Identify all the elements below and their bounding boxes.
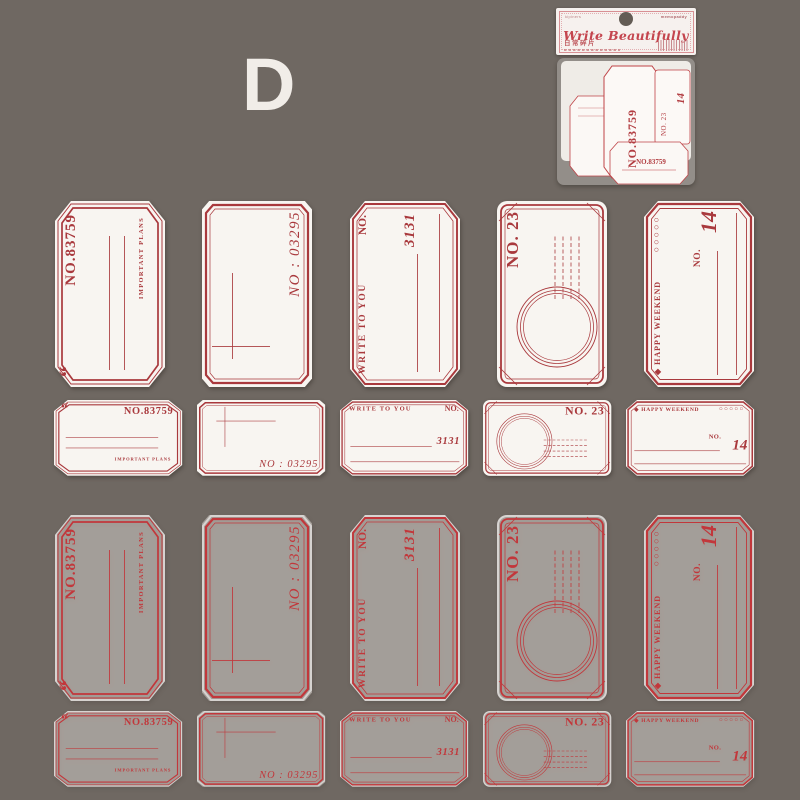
sticker-write-to-you-tall-film: WRITE TO YOUNO.3131 [349, 515, 461, 701]
label-number: 14 [698, 525, 720, 547]
writing-line [109, 236, 110, 370]
sticker-no-23-tall-film: NO. 23 [496, 515, 608, 701]
sticker-design: ◆ HAPPY WEEKEND○○○○○NO.14 [644, 515, 754, 701]
sticker-happy-weekend-tall-paper: ◆ HAPPY WEEKEND○○○○○NO.14 [643, 201, 755, 387]
label-number: NO : 03295 [259, 770, 318, 780]
label-tagline: IMPORTANT PLANS [139, 531, 146, 613]
circle-chain-icon: ○○○○○ [719, 717, 745, 723]
sticker-design: NO. 23 [483, 711, 611, 787]
label-number: 3131 [403, 527, 418, 561]
label-number: 14 [732, 748, 747, 763]
sticker-important-plans-small-film: “NO.83759IMPORTANT PLANS [54, 711, 183, 787]
sticker-design: NO. 23 [497, 515, 607, 701]
label-heading: WRITE TO YOU [359, 283, 369, 374]
sticker-important-plans-small-paper: “NO.83759IMPORTANT PLANS [54, 400, 183, 476]
package-subtitle-cn: 日常碎片 [564, 40, 620, 47]
writing-line [66, 448, 158, 449]
writing-line [717, 251, 718, 375]
row-small-film-stickers: “NO.83759IMPORTANT PLANSNO : 03295WRITE … [0, 711, 800, 787]
writing-line [66, 759, 158, 760]
writing-line [634, 450, 720, 451]
variant-letter: D [242, 48, 295, 122]
sticker-design: WRITE TO YOUNO.3131 [340, 400, 468, 476]
package-bag: NO.83759 14 NO. 23 NO.83759 [557, 58, 695, 185]
label-number: NO. 23 [565, 405, 604, 417]
label-number: 3131 [437, 748, 460, 758]
label-tagline: IMPORTANT PLANS [139, 217, 146, 299]
label-no: NO. [694, 563, 704, 581]
writing-line [634, 463, 746, 464]
writing-line [439, 528, 440, 686]
sticker-design: WRITE TO YOUNO.3131 [350, 515, 460, 701]
sticker-design: NO. 23 [483, 400, 611, 476]
quote-mark: “ [61, 401, 69, 416]
row-tall-white-stickers: “NO.83759IMPORTANT PLANSNO : 03295WRITE … [0, 201, 800, 387]
writing-line [417, 254, 418, 372]
bag-text-bottom-number: NO.83759 [636, 158, 666, 166]
label-heading: WRITE TO YOU [349, 406, 412, 413]
package-fine-print [564, 49, 620, 51]
writing-line [736, 213, 737, 375]
sticker-design: “NO.83759IMPORTANT PLANS [54, 400, 182, 476]
label-number: NO. 23 [565, 716, 604, 728]
label-no: NO. [445, 406, 459, 414]
sticker-design: “NO.83759IMPORTANT PLANS [55, 515, 165, 701]
product-package: kipiners memopaddy Write Beautifully 日常碎… [556, 8, 696, 185]
registration-line [225, 718, 226, 758]
sticker-design: ◆ HAPPY WEEKEND○○○○○NO.14 [644, 201, 754, 387]
label-no: NO. [358, 215, 370, 235]
label-no: NO. [709, 435, 722, 442]
sticker-no-03295-small-paper: NO : 03295 [197, 400, 326, 476]
writing-line [109, 550, 110, 684]
writing-line [439, 214, 440, 372]
sticker-write-to-you-small-film: WRITE TO YOUNO.3131 [340, 711, 469, 787]
label-heading: WRITE TO YOU [349, 717, 412, 724]
label-number: 3131 [403, 213, 418, 247]
label-number: 3131 [437, 437, 460, 447]
writing-line [124, 236, 125, 370]
bag-text-14: 14 [675, 93, 687, 105]
writing-line [717, 565, 718, 689]
label-no: NO. [709, 746, 722, 753]
label-number: 14 [732, 437, 747, 452]
barcode [658, 40, 688, 51]
label-heading: ◆ HAPPY WEEKEND [634, 407, 699, 413]
quote-mark: “ [56, 680, 78, 691]
sticker-no-03295-tall-film: NO : 03295 [201, 515, 313, 701]
sticker-write-to-you-small-paper: WRITE TO YOUNO.3131 [340, 400, 469, 476]
bag-text-no23: NO. 23 [660, 112, 668, 136]
brand-text-left: kipiners [565, 14, 581, 19]
product-photo: D kipiners memopaddy Write Beautifully 日… [0, 0, 800, 800]
row-small-white-stickers: “NO.83759IMPORTANT PLANSNO : 03295WRITE … [0, 400, 800, 476]
label-no: NO. [445, 717, 459, 725]
writing-line [634, 774, 746, 775]
writing-line [634, 761, 720, 762]
sticker-no-23-tall-paper: NO. 23 [496, 201, 608, 387]
sticker-design: WRITE TO YOUNO.3131 [350, 201, 460, 387]
bag-contents-art: NO.83759 14 NO. 23 NO.83759 [557, 58, 695, 185]
label-no: NO. [358, 529, 370, 549]
sticker-design: NO. 23 [497, 201, 607, 387]
hang-hole [619, 12, 633, 26]
label-heading: ◆ HAPPY WEEKEND [654, 281, 662, 375]
quote-mark: “ [56, 366, 78, 377]
registration-line [212, 346, 270, 347]
quote-mark: “ [61, 712, 69, 727]
sticker-important-plans-tall-film: “NO.83759IMPORTANT PLANS [54, 515, 166, 701]
label-number: 14 [698, 211, 720, 233]
writing-line [66, 437, 158, 438]
sticker-design: NO : 03295 [202, 201, 312, 387]
label-number: NO : 03295 [288, 525, 303, 611]
writing-line [350, 772, 459, 773]
label-heading: ◆ HAPPY WEEKEND [634, 718, 699, 724]
package-header-card: kipiners memopaddy Write Beautifully 日常碎… [556, 8, 696, 55]
sticker-write-to-you-tall-paper: WRITE TO YOUNO.3131 [349, 201, 461, 387]
label-heading: WRITE TO YOU [359, 597, 369, 688]
label-number: NO.83759 [124, 406, 174, 416]
sticker-no-03295-small-film: NO : 03295 [197, 711, 326, 787]
sticker-design: NO : 03295 [202, 515, 312, 701]
row-tall-film-stickers: “NO.83759IMPORTANT PLANSNO : 03295WRITE … [0, 515, 800, 701]
sticker-happy-weekend-small-film: ◆ HAPPY WEEKEND○○○○○NO.14 [626, 711, 755, 787]
label-number: NO. 23 [504, 211, 521, 268]
circle-chain-icon: ○○○○○ [719, 406, 745, 412]
card-bottom-row: 日常碎片 [564, 40, 688, 51]
brand-text-right: memopaddy [661, 14, 687, 19]
sticker-design: “NO.83759IMPORTANT PLANS [54, 711, 182, 787]
label-number: NO.83759 [124, 717, 174, 727]
writing-line [350, 446, 431, 447]
writing-line [736, 527, 737, 689]
sticker-no-23-small-paper: NO. 23 [483, 400, 612, 476]
sticker-design: ◆ HAPPY WEEKEND○○○○○NO.14 [626, 400, 754, 476]
label-number: NO.83759 [64, 214, 79, 286]
writing-line [66, 748, 158, 749]
label-number: NO.83759 [64, 528, 79, 600]
label-tagline: IMPORTANT PLANS [115, 458, 172, 462]
sticker-design: WRITE TO YOUNO.3131 [340, 711, 468, 787]
label-no: NO. [694, 249, 704, 267]
circle-chain-icon: ○○○○○ [652, 529, 661, 566]
sticker-design: NO : 03295 [197, 400, 325, 476]
sticker-important-plans-tall-paper: “NO.83759IMPORTANT PLANS [54, 201, 166, 387]
sticker-happy-weekend-tall-film: ◆ HAPPY WEEKEND○○○○○NO.14 [643, 515, 755, 701]
writing-line [124, 550, 125, 684]
registration-line [225, 407, 226, 447]
writing-line [350, 757, 431, 758]
writing-line [417, 568, 418, 686]
sticker-design: ◆ HAPPY WEEKEND○○○○○NO.14 [626, 711, 754, 787]
sticker-no-03295-tall-paper: NO : 03295 [201, 201, 313, 387]
sticker-design: “NO.83759IMPORTANT PLANS [55, 201, 165, 387]
label-heading: ◆ HAPPY WEEKEND [654, 595, 662, 689]
label-number: NO. 23 [504, 525, 521, 582]
label-tagline: IMPORTANT PLANS [115, 769, 172, 773]
registration-line [212, 660, 270, 661]
sticker-happy-weekend-small-paper: ◆ HAPPY WEEKEND○○○○○NO.14 [626, 400, 755, 476]
sticker-no-23-small-film: NO. 23 [483, 711, 612, 787]
sticker-design: NO : 03295 [197, 711, 325, 787]
writing-line [350, 461, 459, 462]
package-subtitle-block: 日常碎片 [564, 40, 620, 51]
circle-chain-icon: ○○○○○ [652, 215, 661, 252]
label-number: NO : 03295 [259, 459, 318, 469]
label-number: NO : 03295 [288, 211, 303, 297]
